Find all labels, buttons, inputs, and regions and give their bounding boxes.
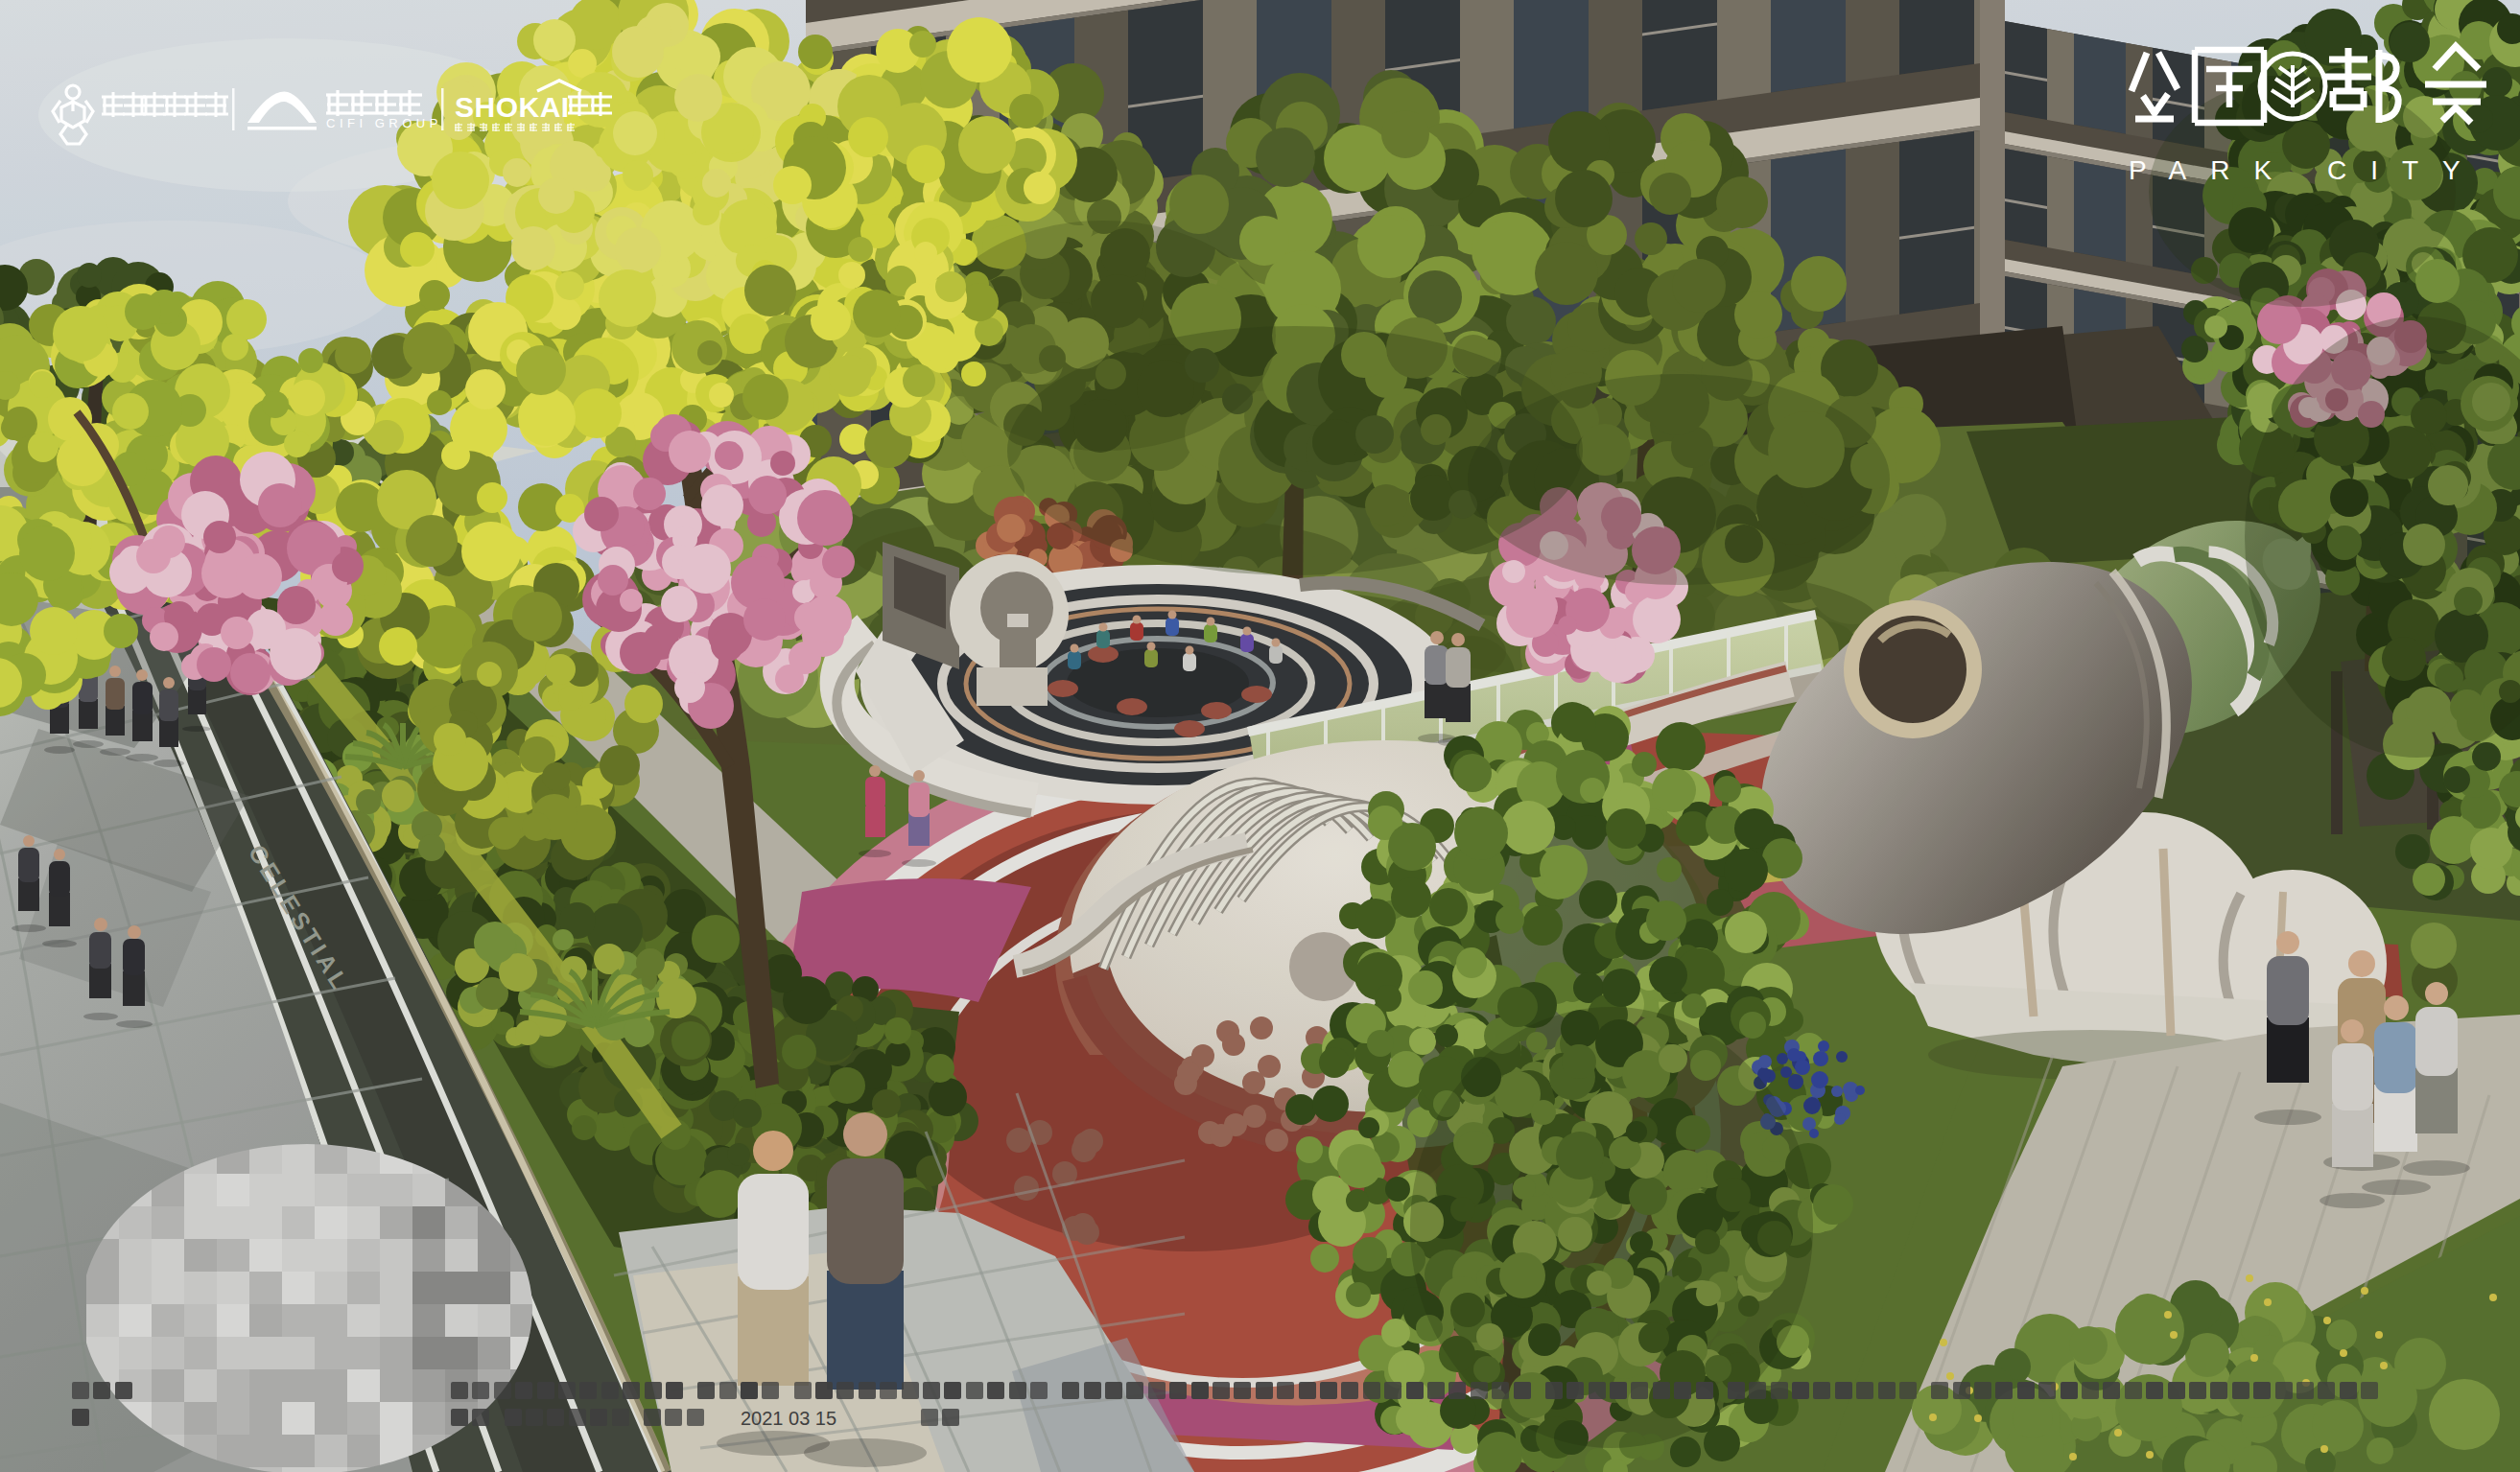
svg-text:PARK CITY: PARK CITY [2129, 155, 2485, 185]
svg-text:CIFI GROUP: CIFI GROUP [326, 116, 442, 130]
svg-text:2021 03 15: 2021 03 15 [741, 1408, 836, 1429]
svg-text:SHOKAI: SHOKAI [455, 91, 570, 123]
